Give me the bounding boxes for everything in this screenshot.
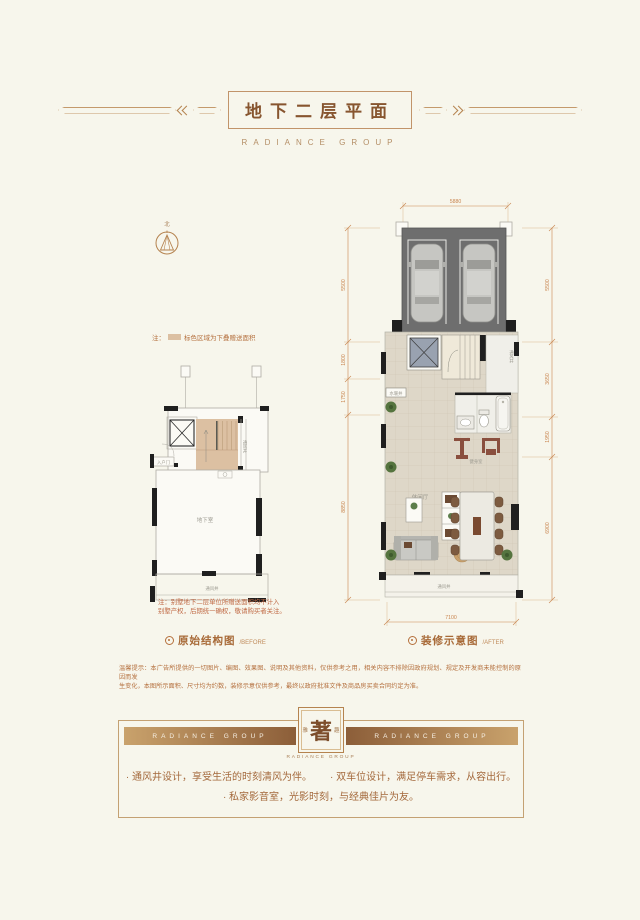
caption-bullet-icon — [165, 636, 174, 645]
elevator-icon — [407, 335, 441, 370]
left-elevator-icon — [167, 417, 197, 449]
dim-left-4: 8850 — [341, 501, 347, 513]
left-entry-label: 入户门 — [157, 459, 170, 466]
sofa-icon — [394, 536, 438, 560]
dim-right-4: 6900 — [545, 522, 551, 534]
vent-side-label: 通风井 — [509, 349, 515, 365]
brand-text: RADIANCE GROUP — [0, 138, 640, 147]
right-plan-figure: 5880 — [330, 192, 565, 644]
bathroom — [455, 393, 511, 434]
vent-bottom-label: 通风井 — [438, 583, 452, 590]
seal-right-char: 趣 — [334, 726, 340, 734]
left-plan-note: 注：别墅地下二层单位所赠送面积均不计入 别墅产权，后期统一确权，敬请购买者关注。 — [158, 598, 338, 616]
footer-seal: 雅 著 趣 — [298, 707, 344, 753]
dim-top-value: 5880 — [450, 199, 462, 205]
compass-icon — [152, 228, 182, 258]
bathtub-icon — [496, 396, 510, 431]
dim-bottom-value: 7100 — [445, 615, 457, 621]
footer-box: RADIANCE GROUP RADIANCE GROUP 雅 著 趣 RADI… — [118, 720, 524, 818]
caption-bullet-icon — [408, 636, 417, 645]
footer-bar-left: RADIANCE GROUP — [124, 727, 296, 745]
caption-right-label: 装修示意图 — [421, 633, 479, 648]
page-root: 地下二层平面 RADIANCE GROUP 北 注： 标色区域为下叠赠送面积 — [0, 0, 640, 920]
gym-label: 健身室 — [470, 458, 484, 465]
disclaimer-line1: 温馨提示：本广告所提供的一切图片、编图、效果图、说明及其他资料，仅供参考之用，相… — [119, 664, 521, 682]
left-plan-figure: 通风井 入户门 地下室 — [148, 362, 313, 614]
caption-left-en: /BEFORE — [240, 640, 266, 646]
chevron-left-icon — [178, 107, 188, 114]
dim-right-1: 5500 — [545, 279, 551, 291]
car-icon — [460, 244, 498, 322]
disclaimer: 温馨提示：本广告所提供的一切图片、编图、效果图、说明及其他资料，仅供参考之用，相… — [119, 664, 521, 691]
dim-left-3: 1750 — [341, 391, 347, 403]
bullet-item: · 通风井设计，享受生活的时刻清风为伴。 — [126, 768, 312, 783]
legend-note-prefix: 注： — [152, 332, 165, 342]
bottom-vent-strip: 通风井 — [379, 572, 523, 598]
legend-swatch — [168, 334, 181, 340]
legend-note: 注： 标色区域为下叠赠送面积 — [152, 332, 256, 342]
legend-note-text: 标色区域为下叠赠送面积 — [184, 332, 256, 342]
plant-stand-icon — [406, 498, 422, 522]
left-lower-block: 地下室 — [152, 470, 262, 576]
dim-left-2: 1800 — [341, 354, 347, 366]
footer-bar-right: RADIANCE GROUP — [346, 727, 518, 745]
pipe-shaft: 水暖井 — [386, 388, 406, 397]
caption-right: 装修示意图 /AFTER — [408, 633, 504, 648]
ornament-line-right-short — [419, 107, 447, 114]
dim-top: 5880 — [400, 199, 511, 209]
dim-right-3: 1950 — [545, 431, 551, 443]
page-title: 地下二层平面 — [245, 102, 395, 121]
compass: 北 — [148, 220, 186, 263]
left-plan-note-line2: 别墅产权，后期统一确权，敬请购买者关注。 — [158, 607, 338, 616]
footer-bullets-row1: · 通风井设计，享受生活的时刻清风为伴。 · 双车位设计，满足停车需求，从容出行… — [119, 768, 523, 783]
caption-left-label: 原始结构图 — [178, 633, 236, 648]
left-vent-bottom-label: 通风井 — [206, 585, 220, 592]
left-courtyard-posts — [181, 366, 261, 408]
dim-left-1: 5500 — [341, 279, 347, 291]
footer-brand-sub: RADIANCE GROUP — [119, 755, 523, 760]
sink-icon — [457, 416, 474, 429]
ornament-line-right — [464, 107, 582, 114]
seal-left-char: 雅 — [302, 726, 308, 734]
left-bonus-stair-area — [196, 419, 238, 471]
dim-right-2: 3650 — [545, 373, 551, 385]
caption-left: 原始结构图 /BEFORE — [165, 633, 266, 648]
footer-bullets-row2: · 私家影音室，光影时刻，与经典佳片为友。 — [119, 788, 523, 803]
compass-north-label: 北 — [148, 220, 186, 228]
bullet-item: · 私家影音室，光影时刻，与经典佳片为友。 — [223, 788, 419, 803]
chevron-right-icon — [452, 107, 462, 114]
bullet-item: · 双车位设计，满足停车需求，从容出行。 — [330, 768, 516, 783]
caption-right-en: /AFTER — [483, 640, 504, 646]
ornament-line-left — [58, 107, 176, 114]
car-icon — [408, 244, 446, 322]
left-room-label: 地下室 — [197, 516, 214, 524]
seal-main-char: 著 — [310, 714, 332, 746]
dim-chain-right: 5500 3650 1950 6900 — [545, 225, 555, 603]
ornament-line-left-short — [193, 107, 221, 114]
toilet-icon — [479, 410, 489, 427]
pipe-label: 水暖井 — [390, 390, 404, 397]
disclaimer-line2: 生变化，本图所示面积、尺寸均为约数，装修示意仅供参考，最终以政府批准文件及商品房… — [119, 682, 521, 691]
foyer: 通风井 — [486, 335, 518, 393]
header: 地下二层平面 RADIANCE GROUP — [0, 94, 640, 147]
garage — [392, 222, 516, 340]
title-box: 地下二层平面 — [228, 91, 412, 129]
dim-chain-left: 5500 1800 1750 8850 — [341, 225, 351, 603]
left-well-label: 通风井 — [242, 439, 248, 455]
dim-bottom: 7100 — [384, 615, 519, 625]
left-plan-note-line1: 注：别墅地下二层单位所赠送面积均不计入 — [158, 598, 338, 607]
stairs — [442, 335, 486, 379]
header-ornament: 地下二层平面 — [0, 94, 640, 126]
